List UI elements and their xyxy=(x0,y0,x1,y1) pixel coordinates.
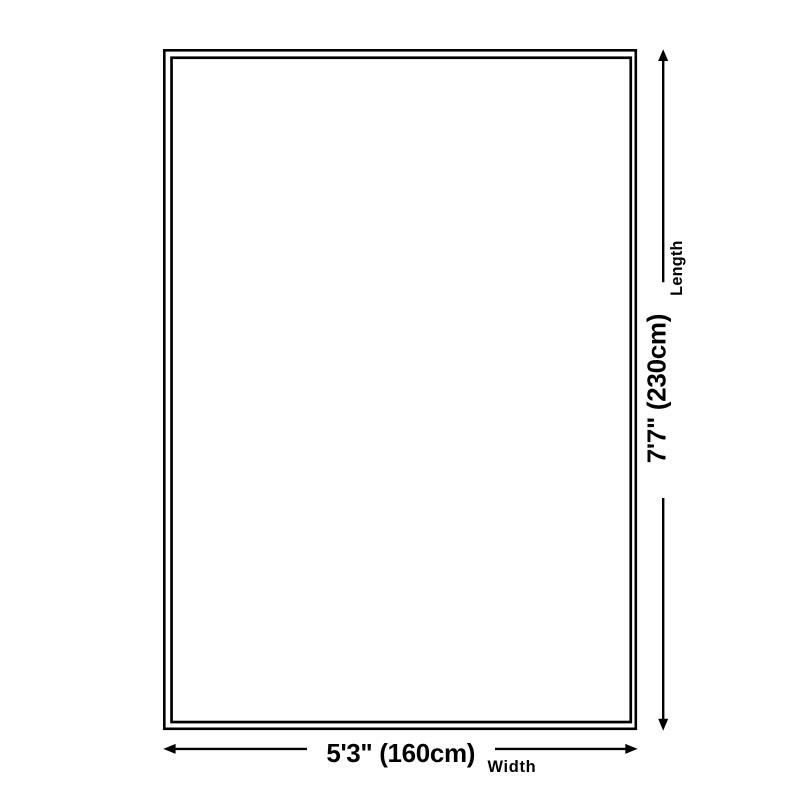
svg-text:5'3" (160cm): 5'3" (160cm) xyxy=(326,738,475,768)
svg-text:Length: Length xyxy=(668,240,686,295)
svg-text:7'7" (230cm): 7'7" (230cm) xyxy=(642,314,672,463)
svg-text:Width: Width xyxy=(488,758,537,776)
